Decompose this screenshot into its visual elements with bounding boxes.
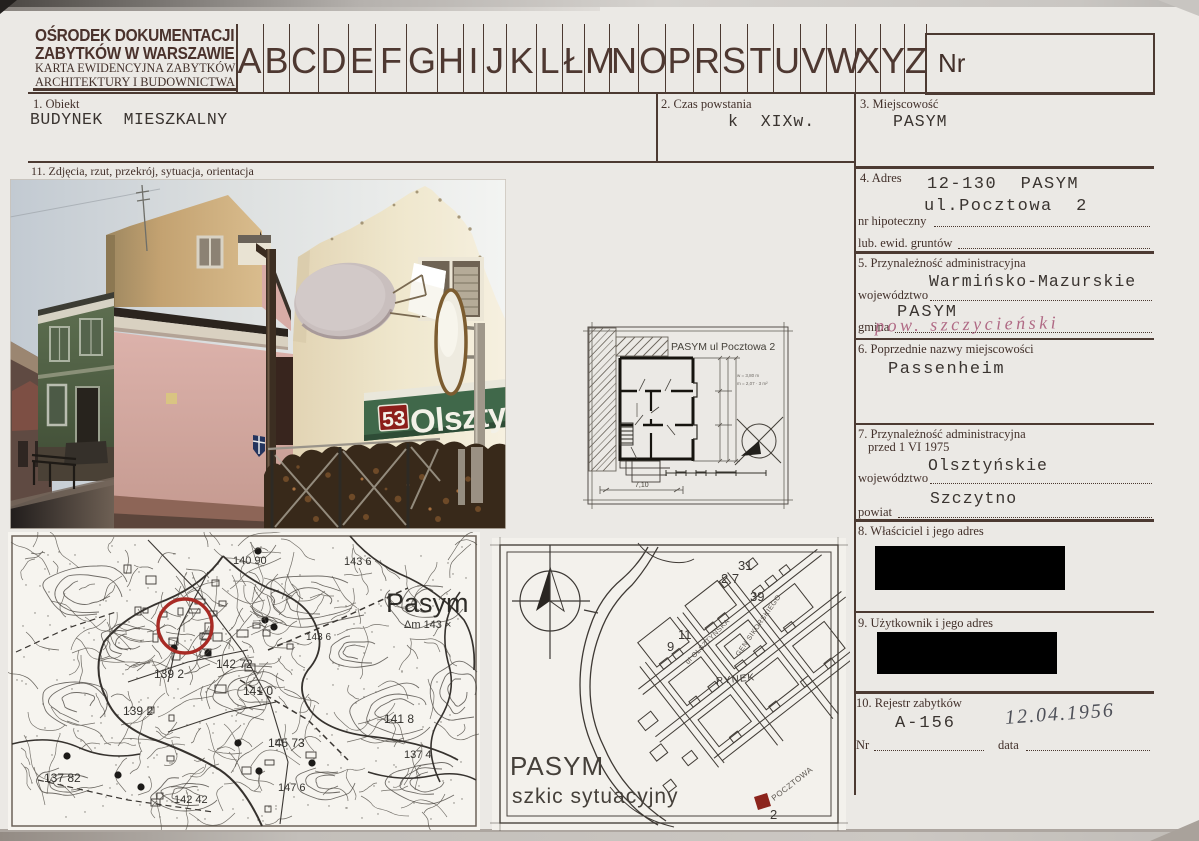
svg-text:9: 9 — [667, 639, 674, 654]
svg-text:141 0: 141 0 — [243, 684, 273, 698]
svg-text:142 42: 142 42 — [174, 794, 208, 806]
svg-text:31: 31 — [738, 558, 752, 573]
svg-text:139 2: 139 2 — [154, 667, 184, 681]
svg-text:w = 3,80 m: w = 3,80 m — [737, 373, 759, 378]
svg-text:2: 2 — [770, 807, 777, 822]
svg-text:145 73: 145 73 — [268, 736, 305, 750]
svg-text:PASYM: PASYM — [510, 751, 604, 781]
svg-text:142 72: 142 72 — [216, 657, 253, 671]
svg-text:szkic sytuacyjny: szkic sytuacyjny — [512, 785, 679, 808]
svg-text:143 6: 143 6 — [306, 632, 331, 643]
svg-text:11: 11 — [678, 627, 692, 642]
svg-text:141 8: 141 8 — [384, 712, 414, 726]
svg-text:137 82: 137 82 — [44, 771, 81, 785]
svg-text:147 6: 147 6 — [278, 782, 306, 794]
svg-text:140 90: 140 90 — [233, 555, 267, 567]
svg-text:39: 39 — [750, 589, 764, 604]
svg-text:Δm 143 ×: Δm 143 × — [404, 619, 451, 631]
svg-text:143 6: 143 6 — [344, 556, 372, 568]
svg-text:7,10: 7,10 — [635, 482, 649, 489]
svg-text:2 7: 2 7 — [721, 571, 739, 586]
svg-text:m = 2,07 · 3 m²: m = 2,07 · 3 m² — [737, 381, 768, 386]
svg-text:53: 53 — [381, 407, 406, 432]
svg-text:139 2: 139 2 — [123, 704, 153, 718]
svg-text:137 4: 137 4 — [404, 749, 432, 761]
svg-text:PASYM ul Pocztowa 2: PASYM ul Pocztowa 2 — [671, 341, 775, 353]
svg-text:Pasym: Pasym — [386, 588, 469, 618]
